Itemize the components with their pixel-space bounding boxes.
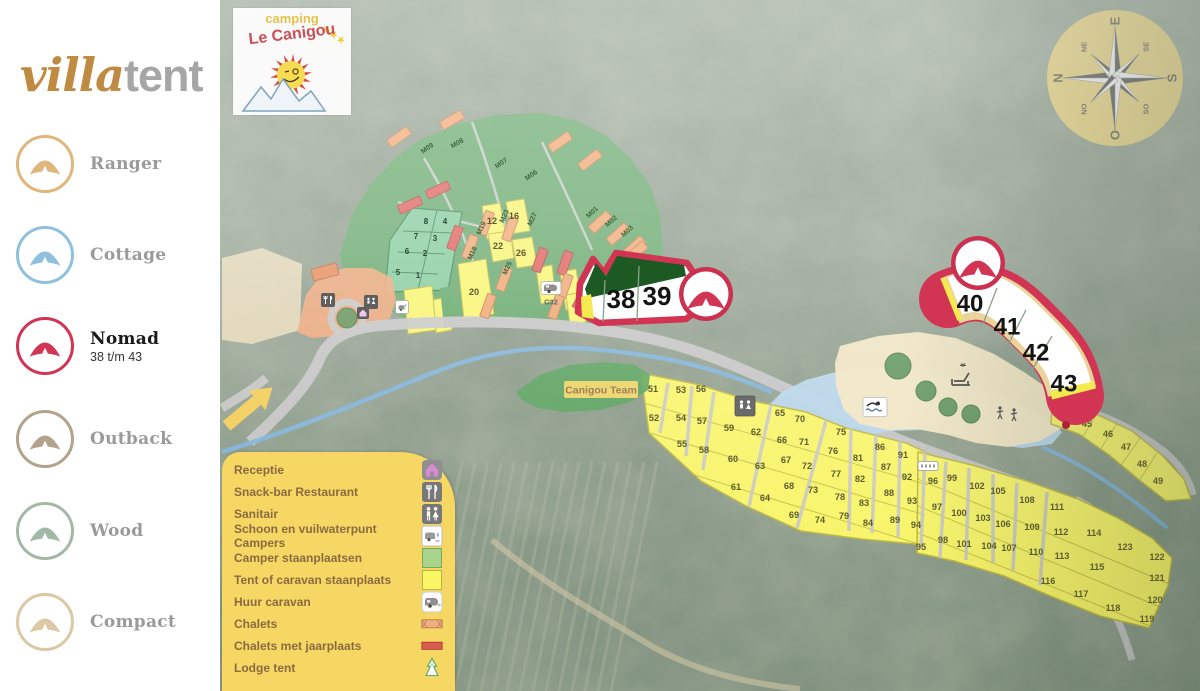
plot-number: 86 [875,442,885,452]
plot-number: 88 [884,488,894,498]
plot-number: 109 [1024,522,1039,532]
plot-number: 103 [975,513,990,523]
plot-number: 111 [1050,502,1064,512]
legend-row-chalet-red: Chalets met jaarplaats [222,635,455,657]
tent-icon [16,226,74,284]
plot-number: 101 [956,539,971,549]
sidebar-item-nomad[interactable]: Nomad38 t/m 43 [16,318,159,374]
green-swatch-icon [421,547,443,569]
plot-number: 110 [1029,547,1044,557]
chalet-red-icon [421,635,443,657]
plot-number: 8 [424,217,429,226]
plot-number: 105 [990,486,1005,496]
compass-label-SE: SE [1142,42,1151,52]
tent-icon [16,410,74,468]
plot-number: 64 [760,493,771,503]
yellow-swatch-icon [421,569,443,591]
legend-label: Tent of caravan staanplaats [234,573,421,587]
legend-label: Snack-bar Restaurant [234,485,421,499]
plot-number: 106 [995,519,1010,529]
highlighted-plot-number: 42 [1023,339,1050,366]
legend-label: Lodge tent [234,661,421,675]
compass-label-O: O [1108,130,1123,140]
plot-number: 1 [416,271,421,280]
sidebar-item-outback[interactable]: Outback [16,411,172,467]
legend-label: Chalets [234,617,421,631]
plot-number: 113 [1055,551,1070,561]
compass-label-NE: NE [1080,42,1089,52]
camper-service-icon [421,525,443,547]
legend-row-house: Receptie [222,459,455,481]
plot-number: 72 [802,461,812,471]
tent-icon [16,135,74,193]
plot-number: 112 [1054,527,1069,537]
plot-number: 55 [677,439,687,449]
plot-number: 91 [898,450,908,460]
tent-icon [16,317,74,375]
plot-number: 92 [902,472,912,482]
legend-row-green-swatch: Camper staanplaatsen [222,547,455,569]
plot-number: 51 [648,384,658,394]
plot-number: 114 [1087,528,1103,538]
legend-row-caravan: Huur caravan [222,591,455,613]
canigou-team-label: Canigou Team [565,385,637,397]
campsite-logo: camping ★★★ Le Canigou [233,8,351,115]
wc-icon [421,503,443,525]
highlighted-plot-number: 41 [994,313,1021,340]
plot-number: 93 [907,496,917,506]
compass-label-N: N [1051,73,1066,82]
plot-number: 89 [890,515,900,525]
sidebar: villatent Ranger Cottage Nomad38 t/m 43 … [0,0,220,691]
plot-number: 71 [799,437,809,447]
house-icon [421,459,443,481]
legend-row-lodge: Lodge tent [222,657,455,679]
highlighted-plot-number: 43 [1051,370,1078,397]
plot-number: 78 [835,492,845,502]
plot-number: 79 [839,511,849,521]
plot-number: 118 [1106,603,1121,613]
plot-number: 83 [859,498,869,508]
legend-label: Camper staanplaatsen [234,551,421,565]
plot-number: 6 [405,247,410,256]
sidebar-item-wood[interactable]: Wood [16,503,143,559]
plot-number: 100 [951,508,966,518]
villatent-logo: villatent [20,48,202,102]
sun-mountains-art [233,53,351,115]
plot-number: 121 [1149,573,1164,583]
legend-label: Sanitair [234,507,421,521]
tent-type-label: Cottage [90,245,166,265]
plot-number: 122 [1149,552,1164,562]
legend-row-chalet: Chalets [222,613,455,635]
plot-number: 81 [853,453,863,463]
plot-number: 12 [487,216,497,226]
legend-label: Huur caravan [234,595,421,609]
plot-number: 59 [724,423,734,433]
tent-type-label: Ranger [90,154,161,174]
plot-number: 69 [789,510,799,520]
highlighted-plot-number: 39 [643,281,672,311]
plot-number: 3 [433,234,438,243]
plot-number: 61 [731,482,741,492]
plot-number: 22 [493,241,503,251]
tent-type-range: 38 t/m 43 [90,350,159,364]
legend-row-cutlery: Snack-bar Restaurant [222,481,455,503]
plot-number: 102 [969,481,984,491]
plot-number: 67 [781,455,791,465]
plot-number: 53 [676,385,686,395]
tent-type-label: Nomad [90,329,159,349]
tent-icon [16,502,74,560]
plot-number: 60 [728,454,738,464]
plot-number: 82 [855,474,865,484]
highlighted-plot-number: 40 [957,290,984,317]
plot-number: 77 [831,469,841,479]
lodge-icon [421,657,443,679]
nomad-badge-38-39[interactable] [679,267,733,321]
plot-number: 76 [828,446,838,456]
map-legend: Receptie Snack-bar Restaurant Sanitair S… [222,452,455,691]
mountains-icon [243,79,325,111]
plot-number: 104 [981,541,997,551]
compass-label-S: S [1165,73,1180,82]
compass-label-SO: SO [1142,104,1151,115]
legend-label: Schoon en vuilwaterpunt Campers [234,522,421,550]
plot-number: 97 [932,502,942,512]
campground-map-page: Canigou Team NESONESESONO 12162022264546… [0,0,1200,691]
plot-number: 123 [1117,542,1132,552]
tent-icon [16,593,74,651]
chalet-icon [421,613,443,635]
plot-number: 52 [649,413,659,423]
plot-number: 99 [947,473,957,483]
nomad-badge-40-43[interactable] [951,236,1005,290]
plot-number: 49 [1153,476,1163,486]
plot-number: 117 [1074,589,1089,599]
plot-number: 7 [414,232,419,241]
legend-label: Receptie [234,463,421,477]
compass-label-E: E [1108,16,1123,25]
plot-number: 115 [1090,562,1105,572]
legend-row-camper-service: Schoon en vuilwaterpunt Campers [222,525,455,547]
sidebar-item-ranger[interactable]: Ranger [16,136,161,192]
plot-number: 84 [863,518,874,528]
plot-number: 96 [928,476,938,486]
plot-number: 74 [815,515,826,525]
caravan-icon [421,591,443,613]
sidebar-item-cottage[interactable]: Cottage [16,227,166,283]
plot-number: 2 [423,249,428,258]
logo-villa: villa [20,48,124,102]
plot-number: 73 [808,485,818,495]
caravan-plot-label: C32 [544,298,558,307]
plot-number: 48 [1137,459,1147,469]
compass-label-NO: NO [1080,103,1089,114]
plot-number: 95 [916,542,926,552]
tent-type-label: Wood [90,521,143,541]
plot-number: 98 [938,535,948,545]
plot-number: 57 [697,416,707,426]
plot-number: 108 [1019,495,1034,505]
compass-rose: NESONESESONO [1047,10,1183,146]
tent-type-label: Compact [90,612,176,632]
plot-number: 75 [836,427,846,437]
field-left [222,248,302,344]
highlighted-plot-number: 38 [607,284,636,314]
plot-number: 4 [443,217,448,226]
plot-number: 65 [775,408,785,418]
plot-number: 20 [469,287,479,297]
plot-number: 54 [676,413,687,423]
plot-number: 62 [751,427,761,437]
plot-number: 70 [795,414,805,424]
plot-number: 116 [1041,576,1056,586]
sidebar-item-compact[interactable]: Compact [16,594,176,650]
legend-row-yellow-swatch: Tent of caravan staanplaats [222,569,455,591]
plot-number: 5 [396,268,401,277]
tent-type-label: Outback [90,429,172,449]
plot-number: 94 [911,520,922,530]
plot-number: 63 [755,461,765,471]
plot-number: 68 [784,481,794,491]
plot-number: 120 [1147,595,1162,605]
cutlery-icon [421,481,443,503]
plot-number: 47 [1121,442,1131,452]
plot-number: 46 [1103,429,1113,439]
plot-number: 87 [881,462,891,472]
legend-label: Chalets met jaarplaats [234,639,421,653]
plot-number: 119 [1140,614,1155,624]
plot-number: 58 [699,445,709,455]
plot-number: 107 [1001,543,1016,553]
logo-tent: tent [124,50,203,101]
plot-number: 66 [777,435,787,445]
plot-number: 56 [696,384,706,394]
plot-number: 26 [516,248,526,258]
